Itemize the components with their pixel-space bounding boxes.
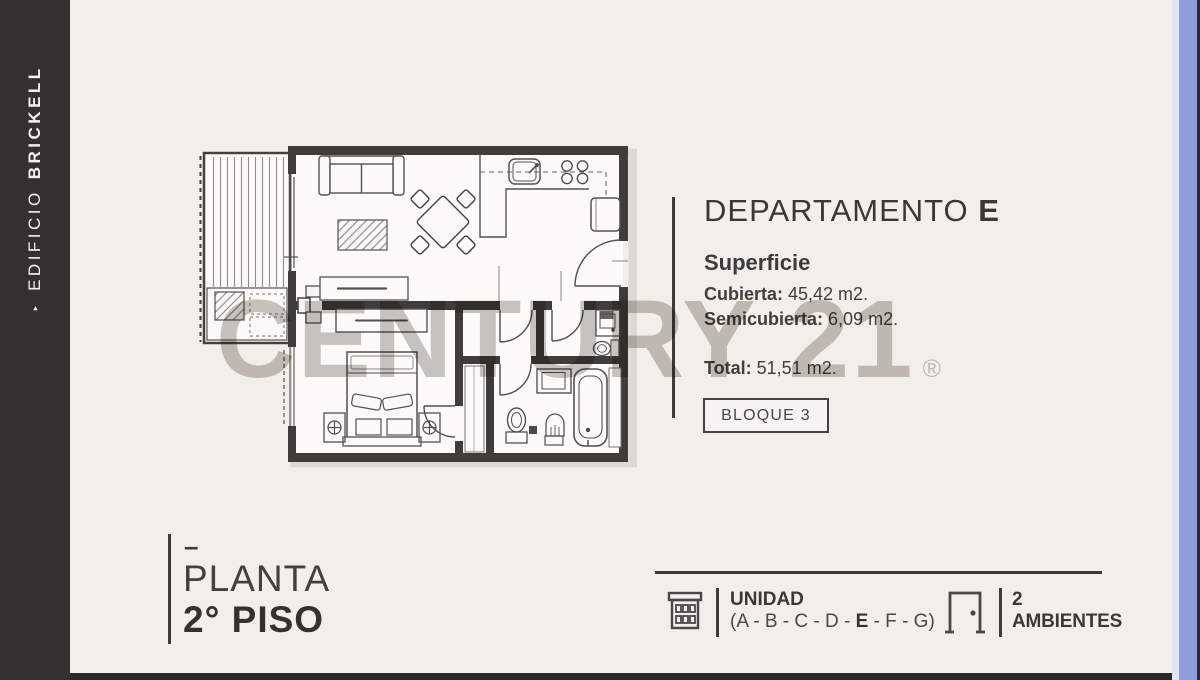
unit-options-tail: - F - G) [868,611,934,632]
covered-label: Cubierta: [704,284,783,304]
total-surface-row: Total: 51,51 m2. [704,358,837,379]
rooms-count: 2 [1012,589,1023,611]
building-name-vertical: ‣EDIFICIOBRICKELL [25,65,45,312]
tv-console [320,277,408,300]
info-divider [672,197,675,418]
hamper [529,426,537,434]
covered-value: 45,42 m2. [783,284,868,304]
wardrobe [336,309,427,332]
building-name: BRICKELL [25,65,44,179]
footer-divider-2 [999,588,1002,637]
block-badge[interactable]: BLOQUE 3 [703,398,829,433]
bottom-bar [0,673,1200,680]
rooms-label: AMBIENTES [1012,611,1122,633]
registered-mark: ® [923,355,941,383]
arrow-icon: ‣ [29,305,43,312]
sofa [319,156,404,195]
semicovered-label: Semicubierta: [704,309,823,329]
semicovered-value: 6,09 m2. [823,309,898,329]
apartment-title: DEPARTAMENTO E [704,193,1000,229]
floor-divider [168,534,171,644]
balcony-deck [208,157,286,287]
floor-number: 2° PISO [183,599,324,641]
unit-options-head: (A - B - C - D - [730,611,856,632]
surface-heading: Superficie [704,250,810,276]
dining-set [410,189,476,255]
bed [343,352,421,446]
apartment-unit-letter: E [978,193,1000,228]
shaft [609,368,621,447]
covered-surface-row: Cubierta: 45,42 m2. [704,284,868,305]
semicovered-surface-row: Semicubierta: 6,09 m2. [704,309,898,330]
unit-options: (A - B - C - D - E - F - G) [730,611,935,633]
unit-heading: UNIDAD [730,589,804,611]
balcony-planter [215,292,244,320]
building-icon [666,591,704,631]
coffee-table [338,220,387,250]
accent-stripe-light [1172,0,1179,680]
total-label: Total: [704,358,752,378]
floor-plan [193,141,637,475]
sidebar: ‣EDIFICIOBRICKELL [0,0,70,680]
total-value: 51,51 m2. [752,358,837,378]
balcony [201,153,291,343]
footer-rule [655,571,1102,574]
accent-stripe [1179,0,1197,680]
door-icon [944,589,986,635]
unit-selected: E [856,611,869,632]
footer-divider-1 [716,588,719,637]
apartment-title-label: DEPARTAMENTO [704,193,969,228]
fridge [591,198,620,231]
building-prefix: EDIFICIO [25,189,44,291]
floor-label: PLANTA [183,558,330,600]
